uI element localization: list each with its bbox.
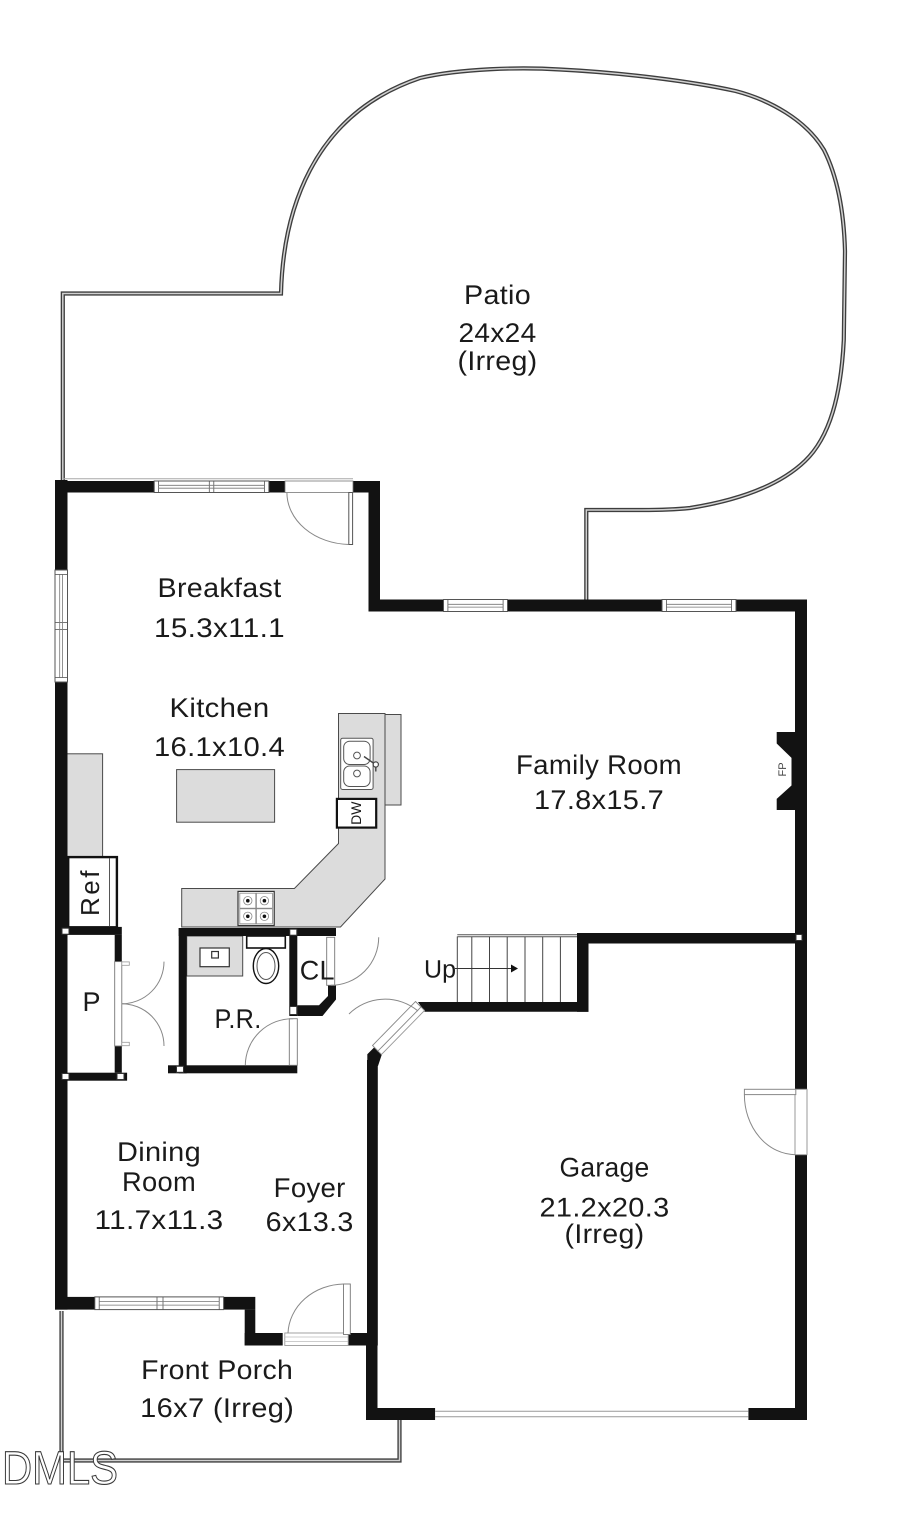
svg-text:Front Porch: Front Porch	[141, 1355, 293, 1385]
svg-text:Up: Up	[424, 956, 456, 984]
svg-text:Ref: Ref	[75, 868, 105, 916]
svg-text:DMLS: DMLS	[2, 1441, 118, 1494]
svg-text:Family Room: Family Room	[516, 750, 682, 780]
svg-text:DW: DW	[348, 801, 364, 825]
svg-text:Foyer: Foyer	[274, 1173, 346, 1203]
svg-text:Kitchen: Kitchen	[170, 693, 270, 723]
svg-text:P.R.: P.R.	[215, 1004, 262, 1034]
svg-text:(Irreg): (Irreg)	[458, 346, 538, 376]
svg-text:17.8x15.7: 17.8x15.7	[534, 785, 664, 815]
svg-text:24x24: 24x24	[459, 318, 537, 348]
svg-text:21.2x20.3: 21.2x20.3	[540, 1193, 670, 1223]
svg-text:6x13.3: 6x13.3	[266, 1207, 354, 1237]
svg-text:16x7 (Irreg): 16x7 (Irreg)	[140, 1393, 294, 1423]
svg-text:Garage: Garage	[560, 1153, 650, 1183]
svg-text:15.3x11.1: 15.3x11.1	[154, 613, 285, 643]
svg-text:(Irreg): (Irreg)	[565, 1219, 645, 1249]
svg-text:Breakfast: Breakfast	[158, 573, 282, 603]
svg-text:Patio: Patio	[464, 280, 531, 310]
svg-text:P: P	[82, 987, 100, 1017]
svg-text:16.1x10.4: 16.1x10.4	[154, 732, 285, 762]
svg-text:Room: Room	[122, 1167, 196, 1197]
svg-text:FP: FP	[777, 762, 789, 776]
svg-text:Dining: Dining	[117, 1137, 201, 1167]
svg-text:CL: CL	[300, 956, 335, 986]
svg-text:11.7x11.3: 11.7x11.3	[95, 1205, 224, 1235]
